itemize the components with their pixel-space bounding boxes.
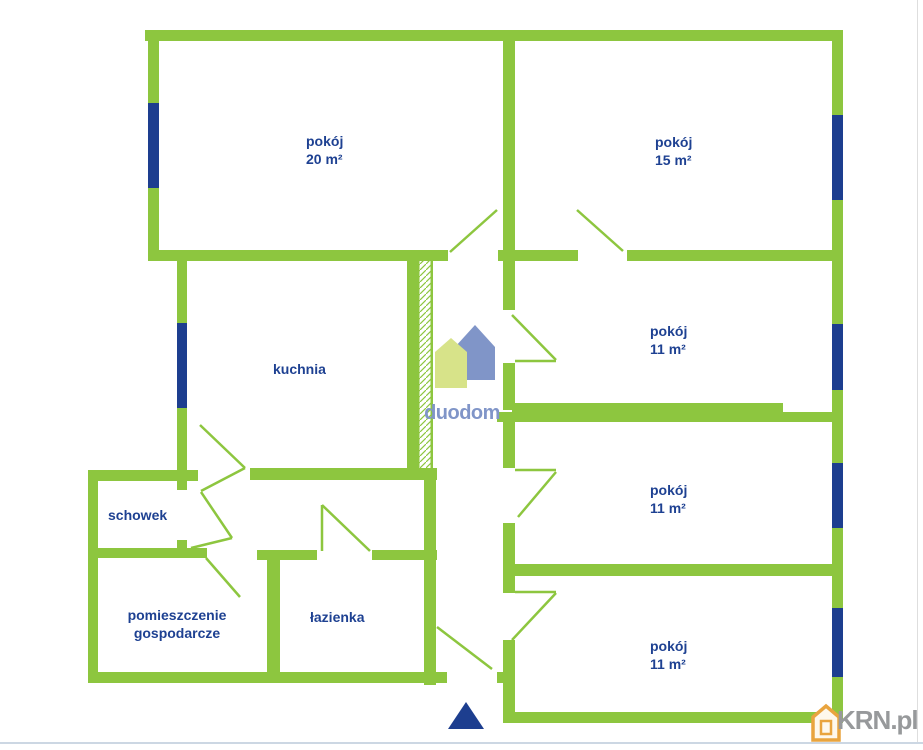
window-kitchen [177,323,187,408]
door-swing-kitchen-a [200,425,245,468]
wall-bathroom-top-left [257,550,317,560]
window-room15 [832,115,843,200]
door-swing-room11c [512,593,556,640]
window-room11b [832,463,843,528]
entrance-triangle-icon [448,702,484,729]
room-label-kuchnia: kuchnia [273,360,326,378]
floor-plan: pokój 20 m² pokój 15 m² pokój 11 m² pokó… [0,0,923,750]
wall-outer-bottom-right [503,712,843,723]
room-name: łazienka [310,609,364,625]
wall-outer-left-lower [88,470,98,683]
door-swing-room20 [450,210,497,252]
krn-watermark-text: KRN.pl [837,705,918,736]
room-name: schowek [108,507,167,523]
room-label-schowek: schowek [108,506,167,524]
room-label-pokoj-11a: pokój 11 m² [650,322,687,359]
duodom-watermark-text: duodom [421,402,503,425]
wall-central-3 [503,422,515,468]
room-label-lazienka: łazienka [310,608,364,626]
wall-divider-room1-2b [497,412,835,422]
window-room11c [832,608,843,677]
window-room20 [148,103,159,188]
duodom-logo-icon [435,325,495,388]
door-swing-storage-a [201,492,232,538]
frame-bottom-edge [0,742,923,744]
door-swing-room15 [577,210,623,251]
door-swing-utility [206,558,240,597]
room-label-pomieszczenie-gospodarcze: pomieszczenie gospodarcze [119,606,235,643]
room-name: kuchnia [273,361,326,377]
room-name-line2: gospodarcze [119,624,235,642]
room-area: 11 m² [650,340,687,358]
wall-kitchen-bottom [250,468,437,480]
wall-utility-bathroom-divider [267,557,280,683]
room-label-pokoj-15: pokój 15 m² [655,133,692,170]
room-label-pokoj-11c: pokój 11 m² [650,637,687,674]
frame-right-edge [917,0,918,742]
room-name: pokój [655,134,692,150]
door-swing-storage-b [191,538,232,548]
wall-central-4 [503,523,515,593]
door-swing-entrance [437,627,492,669]
room-name: pokój [650,323,687,339]
room-area: 20 m² [306,150,343,168]
room-label-pokoj-20: pokój 20 m² [306,132,343,169]
door-swing-room11b [518,472,556,517]
wall-outer-bottom-left [88,672,447,683]
room-name: pokój [650,482,687,498]
shaft-border-right [431,261,434,470]
wall-rooms-bottom-left [148,250,448,261]
door-swing-room11a [512,315,556,360]
room-name: pokój [650,638,687,654]
door-swing-bathroom [322,505,370,551]
window-room11a [832,324,843,390]
wall-storage-bottom [88,548,207,558]
room-area: 11 m² [650,655,687,673]
wall-storage-stub [177,540,187,549]
wall-kitchen-right [407,250,417,480]
wall-entrance-jamb [497,672,515,683]
room-area: 15 m² [655,151,692,169]
shaft-border-left [417,261,420,470]
shaft-hatch-fill [419,261,431,470]
wall-central-1 [503,30,515,310]
wall-central-2 [503,363,515,410]
wall-outer-top [145,30,843,41]
door-swing-kitchen-b [201,468,245,491]
room-name: pomieszczenie [128,607,227,623]
room-label-pokoj-11b: pokój 11 m² [650,481,687,518]
room-area: 11 m² [650,499,687,517]
wall-rooms-bottom-right [627,250,843,261]
wall-storage-top [88,470,198,481]
wall-divider-room1-2a [512,403,783,413]
shaft-hatched [417,261,433,470]
wall-hall-left [424,470,436,685]
room-name: pokój [306,133,343,149]
wall-divider-room2-3 [507,564,835,576]
windows [148,103,843,677]
